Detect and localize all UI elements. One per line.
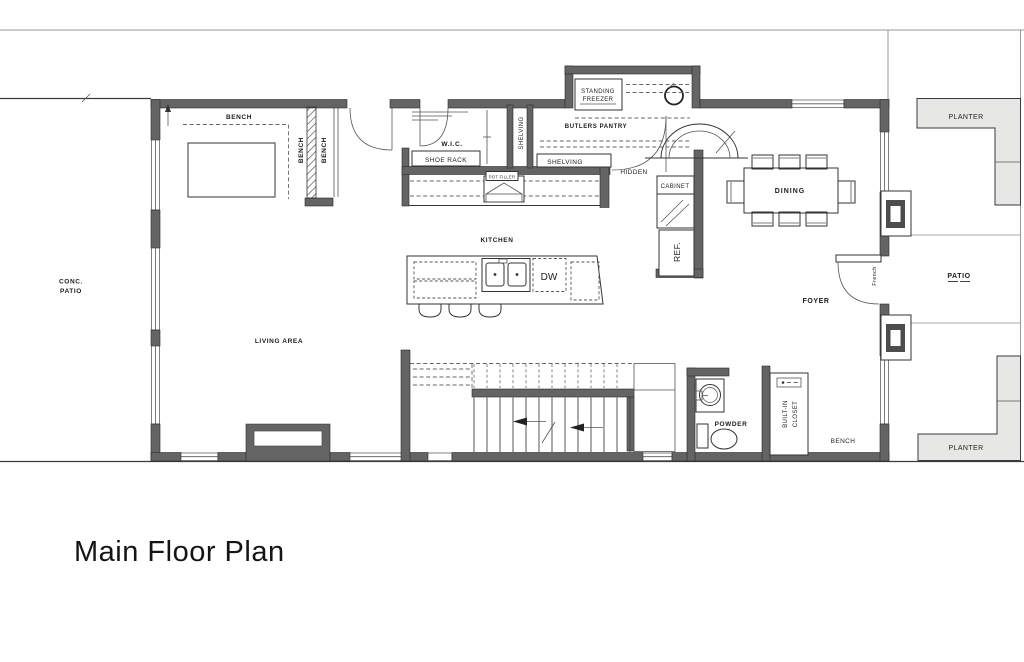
powder-room <box>696 373 808 455</box>
stool <box>449 304 471 317</box>
stair-treads-upper-dashed <box>474 364 617 388</box>
label-french-door: French <box>872 266 878 286</box>
stair-direction-arrow <box>513 418 527 426</box>
label-conc-patio: PATIO <box>60 288 82 295</box>
powder-wall-top <box>687 368 729 376</box>
french-door-leaf <box>836 255 881 262</box>
stair-break-line <box>542 422 555 443</box>
shelving-wall <box>507 105 513 168</box>
exterior-wall <box>880 424 889 461</box>
powder-vanity <box>696 379 724 412</box>
label-bench-top: BENCH <box>226 114 252 121</box>
living-table <box>188 143 275 197</box>
closet-wall <box>762 366 770 461</box>
exterior-wall <box>151 100 347 109</box>
stair-rail-wall <box>472 389 634 397</box>
label-planter-top: PLANTER <box>948 114 983 121</box>
dining-chair <box>806 212 827 226</box>
exterior-wall <box>390 100 420 109</box>
label-shelving: SHELVING <box>547 159 583 166</box>
closet-rod-dot <box>782 381 785 384</box>
kitchen-island <box>407 256 603 317</box>
dining-end-chair <box>727 181 744 203</box>
stair-treads-lower <box>474 398 630 453</box>
stool <box>479 304 501 317</box>
sink-drain <box>494 273 497 276</box>
label-butlers-pantry: BUTLERS PANTRY <box>565 124 627 130</box>
pier-flue <box>891 206 901 222</box>
bay-window <box>254 431 322 446</box>
label-standing-freezer: FREEZER <box>583 97 614 103</box>
label-foyer: FOYER <box>802 298 829 305</box>
exterior-wall <box>700 100 792 109</box>
label-planter-bottom: PLANTER <box>948 445 983 452</box>
stairs <box>410 364 675 453</box>
label-living-area: LIVING AREA <box>255 338 303 345</box>
label-shelving-vertical: SHELVING <box>519 116 525 149</box>
label-dishwasher: DW <box>541 272 558 283</box>
pantry-sink <box>665 87 683 105</box>
pier-flue <box>891 330 901 346</box>
label-built-in-closet: BUILT-IN <box>783 400 789 427</box>
exterior-wall <box>151 453 181 462</box>
exterior-wall <box>151 330 160 346</box>
dining-chair <box>752 212 773 226</box>
dining-chair <box>752 155 773 169</box>
label-dining: DINING <box>775 188 806 195</box>
window <box>428 453 452 461</box>
powder-wall <box>687 368 695 461</box>
cabinet-wall <box>694 150 703 278</box>
toilet-bowl <box>711 429 737 449</box>
label-shoe-rack: SHOE RACK <box>425 157 467 164</box>
lower-cabinet <box>657 194 694 228</box>
toilet-tank <box>697 424 708 448</box>
door-swing-arc <box>350 108 392 150</box>
exterior-wall <box>151 100 160 141</box>
label-standing-freezer: STANDING <box>581 89 615 95</box>
floor-plan-canvas: CONC. PATIO BENCH BENCH BENCH W.I.C. SHO… <box>0 0 1024 662</box>
label-cabinet: CABINET <box>661 184 690 190</box>
exterior-wall <box>218 453 246 462</box>
stair-wall-return <box>627 397 634 451</box>
label-kitchen: KITCHEN <box>480 237 513 244</box>
dining-chair <box>806 155 827 169</box>
label-patio: PATIO <box>947 273 970 280</box>
label-hidden: HIDDEN <box>620 169 647 176</box>
label-wic: W.I.C. <box>441 141 462 148</box>
entry-door-leaf <box>716 131 735 153</box>
wall-pillar <box>600 167 609 208</box>
page-title: Main Floor Plan <box>74 536 285 568</box>
stair-direction-arrow <box>570 424 584 432</box>
pantry-bump-wall <box>565 66 700 74</box>
label-powder: POWDER <box>715 421 748 428</box>
label-built-in-closet: CLOSET <box>793 401 799 427</box>
wic-wall <box>402 148 409 206</box>
exterior-wall <box>448 100 565 109</box>
stair-wall <box>401 350 410 461</box>
label-ref: REF. <box>672 242 682 262</box>
floor-plan-page: CONC. PATIO BENCH BENCH BENCH W.I.C. SHO… <box>0 0 1024 662</box>
exterior-wall <box>151 210 160 248</box>
dining-end-chair <box>838 181 855 203</box>
sink-drain <box>516 273 519 276</box>
pantry-bump-wall <box>692 66 700 108</box>
exterior-wall <box>880 100 889 133</box>
exterior-wall <box>452 453 643 462</box>
label-pot-filler: POT FILLER <box>489 175 516 180</box>
shelving-wall <box>527 105 533 168</box>
hatched-partition <box>307 107 316 198</box>
exterior-wall <box>330 453 350 462</box>
built-in-closet-box <box>770 373 808 455</box>
label-conc-patio: CONC. <box>59 279 83 286</box>
bench-wall-cap <box>305 198 333 206</box>
stool <box>419 304 441 317</box>
stair-landing <box>634 364 675 452</box>
label-bench-bottom: BENCH <box>831 438 856 445</box>
label-bench-vertical: BENCH <box>298 137 305 163</box>
dining-chair <box>779 155 800 169</box>
dining-chair <box>779 212 800 226</box>
label-bench-vertical: BENCH <box>321 137 328 163</box>
